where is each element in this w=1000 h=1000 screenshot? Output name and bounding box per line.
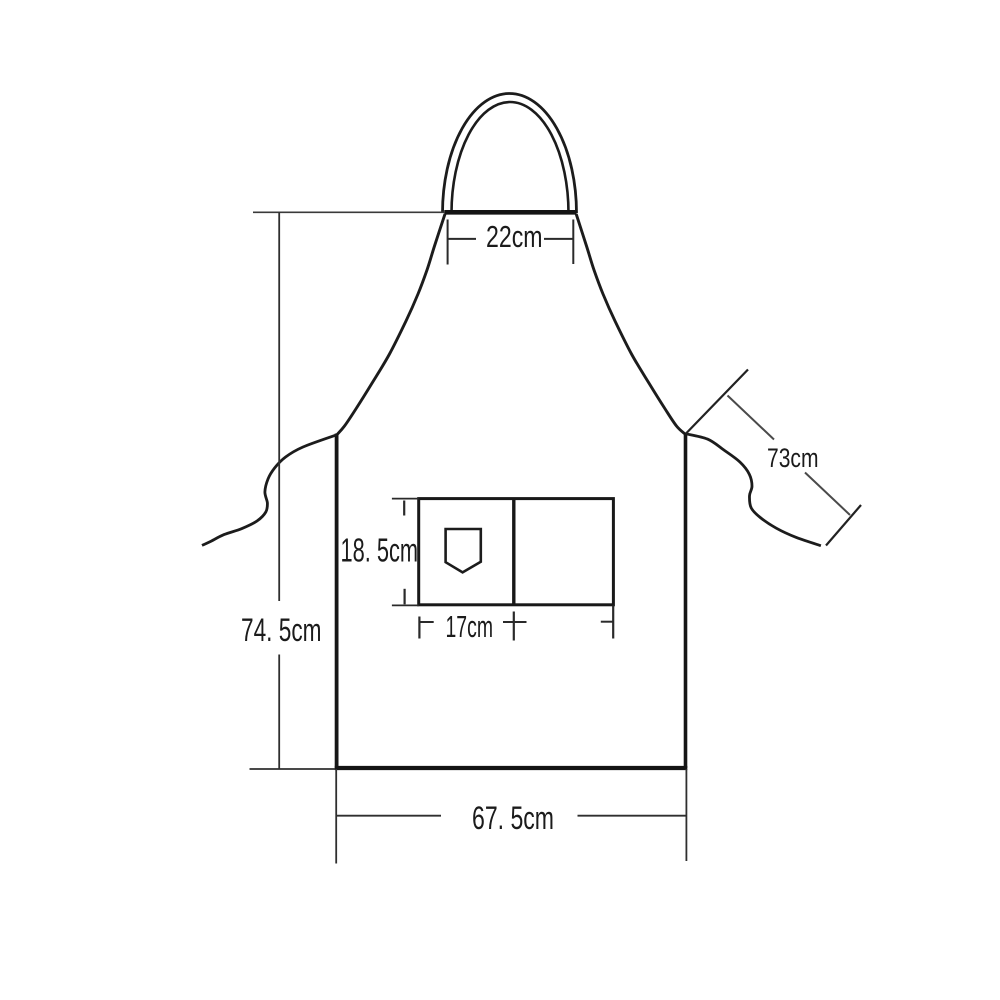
- svg-text:17cm: 17cm: [446, 610, 494, 644]
- svg-text:73cm: 73cm: [767, 443, 819, 473]
- svg-text:67. 5cm: 67. 5cm: [472, 800, 554, 836]
- svg-text:18. 5cm: 18. 5cm: [341, 531, 419, 568]
- svg-text:22cm: 22cm: [486, 219, 543, 254]
- svg-text:74. 5cm: 74. 5cm: [241, 612, 322, 648]
